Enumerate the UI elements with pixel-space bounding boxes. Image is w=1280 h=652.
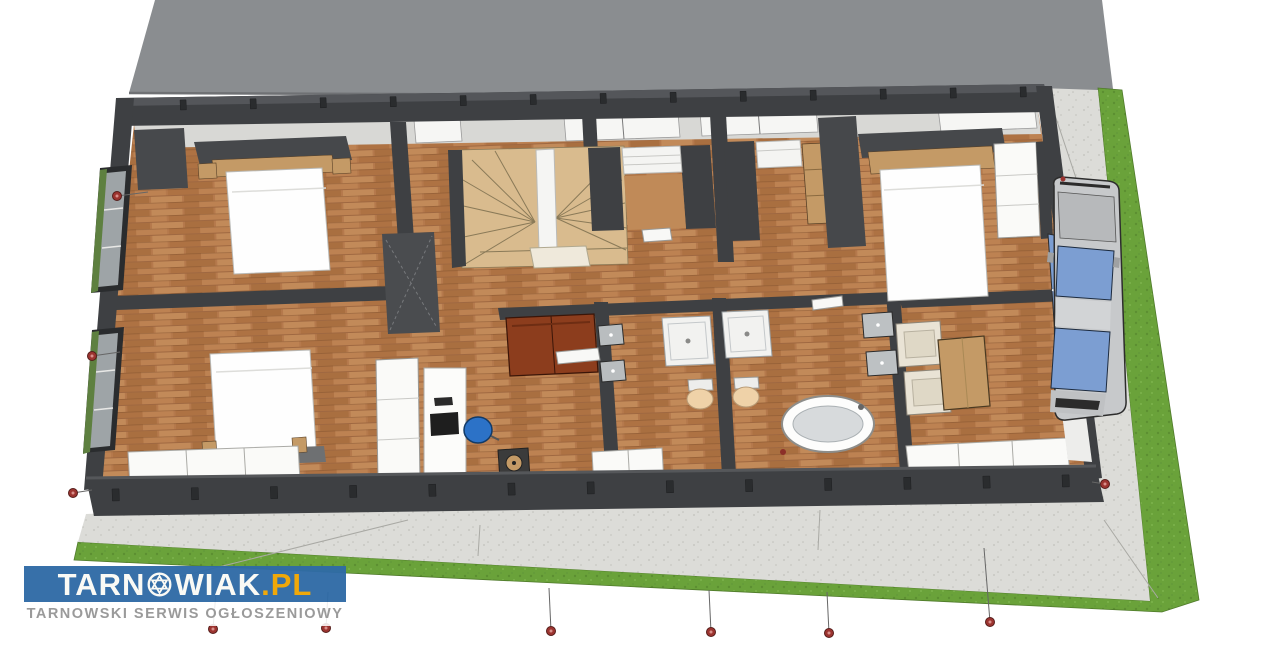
section-marker-dot — [550, 630, 553, 633]
joist-notch — [904, 477, 911, 489]
joist-notch — [460, 96, 466, 106]
joist-notch — [666, 481, 673, 493]
section-marker-dot — [710, 631, 713, 634]
joist-notch — [587, 482, 594, 494]
stair-spine-wall — [536, 149, 557, 249]
joist-notch — [270, 487, 277, 499]
coffee-table — [938, 336, 990, 410]
section-marker-dot — [989, 621, 992, 624]
car-on-driveway — [1047, 177, 1126, 421]
toilet — [687, 389, 713, 409]
mattress — [210, 350, 316, 452]
joist-notch — [950, 88, 956, 98]
joist-notch — [1020, 87, 1026, 97]
office-chair — [464, 417, 492, 443]
section-marker-dot — [91, 355, 94, 358]
car-mirror — [1113, 257, 1120, 268]
joist-notch — [429, 484, 436, 496]
watermark-banner: TARN WIAK . PL — [24, 566, 346, 602]
watermark: TARN WIAK . PL TARNOWSKI SERWIS OGŁOSZEN… — [24, 566, 346, 626]
wardrobe-white — [376, 358, 420, 482]
joist-notch — [880, 89, 886, 99]
joist-notch — [745, 480, 752, 492]
joist-notch — [390, 97, 396, 107]
marker-leader-line — [549, 588, 551, 631]
section-marker-dot — [116, 195, 119, 198]
joist-notch — [600, 93, 606, 103]
scene-svg — [0, 0, 1280, 652]
door-leaf — [642, 228, 672, 242]
brand-text-prefix: TARN — [58, 569, 146, 600]
brand-tld: PL — [271, 569, 313, 600]
section-marker-dot — [72, 492, 75, 495]
joist-notch — [250, 99, 256, 109]
floorplan-render: TARN WIAK . PL TARNOWSKI SERWIS OGŁOSZEN… — [0, 0, 1280, 652]
car-hood — [1058, 192, 1116, 242]
joist-notch — [508, 483, 515, 495]
marker-leader-line — [709, 590, 711, 632]
brand-dot: . — [261, 569, 271, 600]
joist-notch — [825, 478, 832, 490]
joist-notch — [112, 489, 119, 501]
top-window-1 — [414, 118, 462, 143]
stair-base-step — [530, 246, 590, 268]
car-windshield — [1056, 246, 1114, 300]
mattress — [226, 168, 330, 274]
section-marker-dot — [325, 627, 328, 630]
joist-notch — [740, 91, 746, 101]
toilet — [733, 387, 759, 407]
walk-in-closet-1 — [588, 145, 716, 242]
section-marker-dot — [212, 628, 215, 631]
section-marker-dot — [1104, 483, 1107, 486]
car-rear-window — [1051, 328, 1110, 392]
wardrobe-white — [994, 142, 1040, 238]
roof — [129, 0, 1114, 97]
shelves — [756, 140, 802, 168]
section-marker-dot — [828, 632, 831, 635]
star-of-david-icon — [146, 571, 173, 598]
joist-notch — [1062, 475, 1069, 487]
joist-notch — [320, 98, 326, 108]
joist-notch — [350, 485, 357, 497]
joist-notch — [983, 476, 990, 488]
car-mirror — [1047, 252, 1054, 263]
joist-notch — [530, 94, 536, 104]
keyboard — [434, 397, 453, 406]
joist-notch — [670, 92, 676, 102]
monitor — [430, 412, 459, 436]
marker-leader-line — [827, 592, 829, 633]
watermark-tagline: TARNOWSKI SERWIS OGŁOSZENIOWY — [24, 602, 346, 626]
corner-wardrobe — [134, 128, 188, 190]
joist-notch — [810, 90, 816, 100]
shelves — [622, 146, 682, 174]
joist-notch — [191, 488, 198, 500]
brand-text-suffix: WIAK — [174, 569, 261, 600]
car-roof — [1055, 298, 1111, 330]
joist-notch — [180, 100, 186, 110]
